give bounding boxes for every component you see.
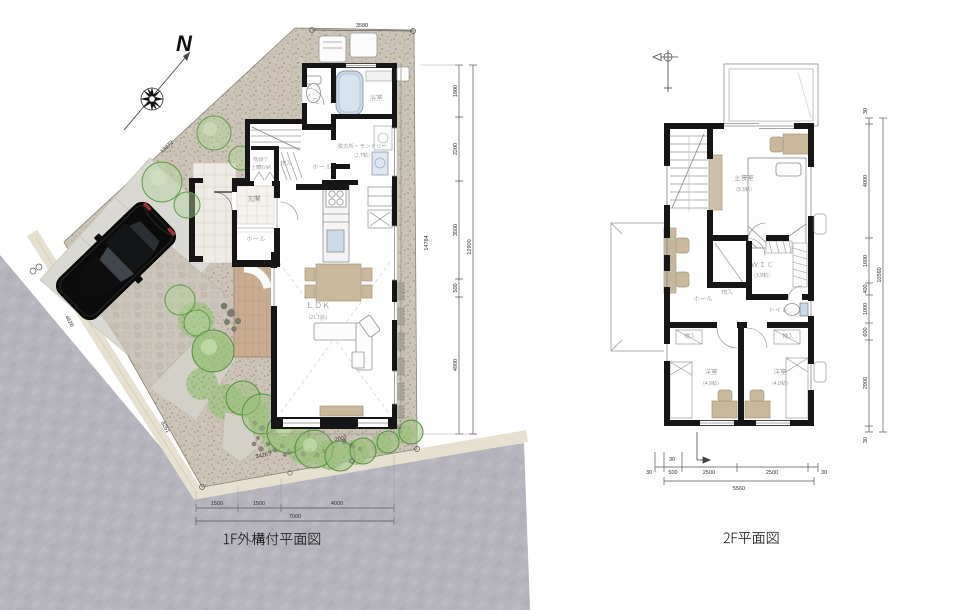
svg-text:14784: 14784 [424, 235, 430, 250]
svg-text:30: 30 [863, 108, 869, 114]
svg-text:30: 30 [863, 437, 869, 443]
svg-text:1800: 1800 [453, 85, 459, 97]
svg-text:30: 30 [646, 470, 652, 476]
svg-text:1000: 1000 [863, 303, 869, 315]
svg-text:4000: 4000 [331, 501, 343, 507]
svg-text:30: 30 [821, 470, 827, 476]
svg-text:N: N [176, 31, 193, 56]
svg-text:3500: 3500 [453, 224, 459, 236]
svg-text:1500: 1500 [253, 501, 265, 507]
svg-text:12900: 12900 [467, 239, 473, 254]
svg-text:500: 500 [668, 470, 677, 476]
svg-text:4000: 4000 [863, 175, 869, 187]
svg-text:400: 400 [863, 284, 869, 293]
svg-text:600: 600 [863, 327, 869, 336]
svg-text:2500: 2500 [766, 470, 778, 476]
svg-text:2500: 2500 [703, 470, 715, 476]
svg-text:4900: 4900 [453, 359, 459, 371]
svg-text:5560: 5560 [733, 486, 745, 492]
svg-text:2900: 2900 [863, 377, 869, 389]
svg-text:30: 30 [669, 457, 675, 463]
svg-text:10560: 10560 [877, 267, 883, 282]
svg-text:7000: 7000 [289, 514, 301, 520]
svg-text:1500: 1500 [211, 501, 223, 507]
svg-text:500: 500 [453, 283, 459, 292]
svg-text:2200: 2200 [453, 143, 459, 155]
svg-text:3580: 3580 [356, 23, 368, 29]
svg-text:1600: 1600 [863, 255, 869, 267]
